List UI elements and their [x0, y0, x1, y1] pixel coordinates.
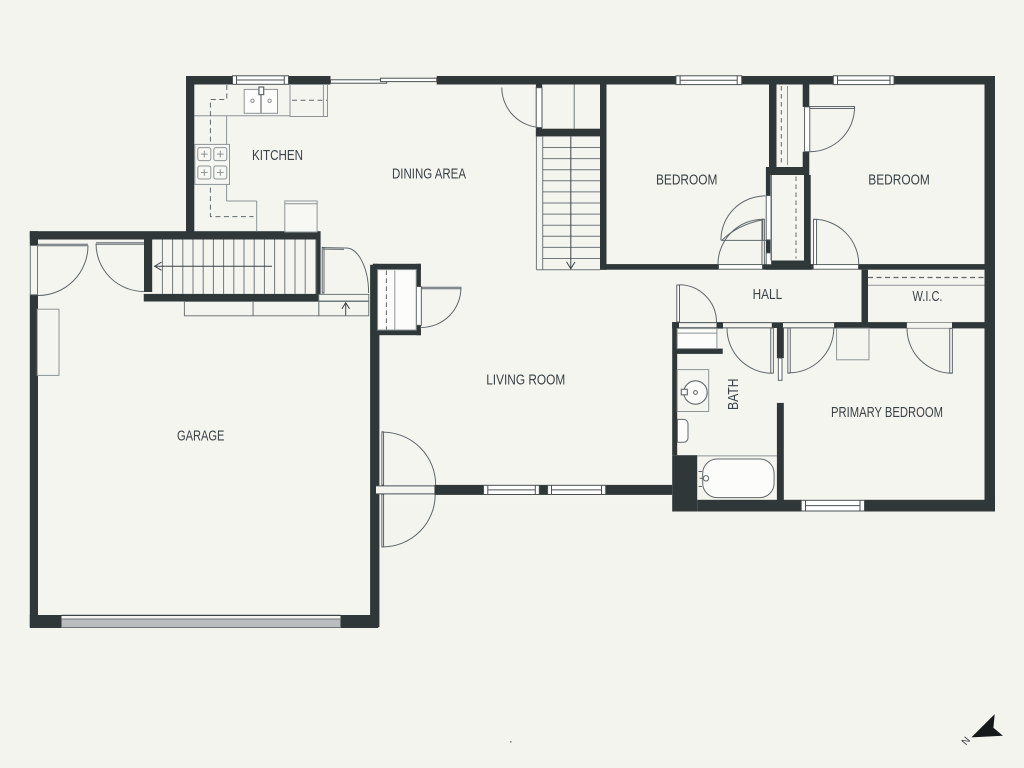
svg-text:HALL: HALL	[753, 286, 783, 303]
svg-text:GARAGE: GARAGE	[177, 427, 225, 444]
svg-text:KITCHEN: KITCHEN	[252, 147, 303, 164]
svg-text:BEDROOM: BEDROOM	[868, 172, 930, 189]
svg-text:PRIMARY BEDROOM: PRIMARY BEDROOM	[831, 404, 943, 421]
svg-text:BEDROOM: BEDROOM	[656, 172, 718, 189]
svg-text:BATH: BATH	[725, 378, 742, 410]
svg-text:DINING AREA: DINING AREA	[392, 166, 466, 183]
svg-text:LIVING ROOM: LIVING ROOM	[486, 372, 565, 389]
svg-text:W.I.C.: W.I.C.	[913, 288, 943, 305]
